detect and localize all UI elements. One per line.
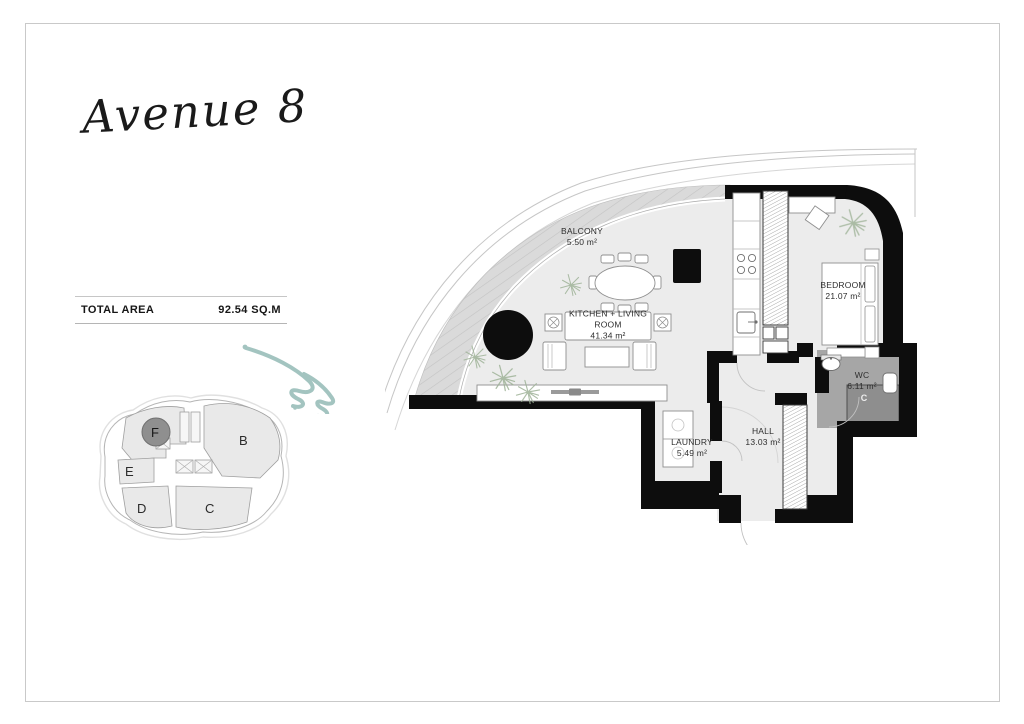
coffee-table-icon bbox=[585, 347, 629, 367]
armchair-left-icon bbox=[543, 342, 566, 370]
floor-plan-page: Avenue 8 TOTAL AREA 92.54 SQ.M bbox=[0, 0, 1024, 724]
nightstand-icon bbox=[865, 249, 879, 260]
unit-label-b: B bbox=[239, 433, 248, 448]
wc-sink-icon bbox=[821, 355, 841, 371]
toilet-icon bbox=[883, 373, 897, 393]
total-area-value: 92.54 SQ.M bbox=[218, 304, 281, 316]
room-label-bedroom: BEDROOM 21.07 m² bbox=[820, 280, 865, 302]
side-table-right-icon bbox=[654, 314, 671, 331]
tv-console-icon bbox=[477, 385, 667, 401]
unit-d-shape bbox=[122, 486, 172, 528]
side-table-left-icon bbox=[545, 314, 562, 331]
sink-icon bbox=[737, 312, 758, 333]
round-chair-icon bbox=[483, 310, 533, 360]
total-area-label: TOTAL AREA bbox=[81, 304, 154, 316]
room-label-laundry: LAUNDRY 5.49 m² bbox=[671, 437, 713, 459]
brand-logo: Avenue 8 bbox=[81, 77, 343, 144]
armchair-right-icon bbox=[633, 342, 656, 370]
unit-label-d: D bbox=[137, 501, 146, 516]
floor-plan-drawing bbox=[385, 145, 925, 545]
bed-icon bbox=[822, 249, 879, 358]
room-label-balcony: BALCONY 5.50 m² bbox=[561, 226, 603, 248]
key-plan-icon: B C D E F bbox=[92, 386, 297, 548]
floor-plan: BALCONY 5.50 m² KITCHEN + LIVING ROOM 41… bbox=[385, 145, 925, 545]
room-label-kitchen-living: KITCHEN + LIVING ROOM 41.34 m² bbox=[564, 308, 652, 341]
unit-label-e: E bbox=[125, 464, 134, 479]
nightstand-icon bbox=[865, 347, 879, 358]
unit-e-shape bbox=[118, 458, 154, 484]
wardrobe-hall-icon bbox=[783, 405, 807, 509]
shower-watermark: C bbox=[861, 393, 868, 403]
unit-label-f: F bbox=[151, 425, 159, 440]
room-label-hall: HALL 13.03 m² bbox=[745, 426, 780, 448]
media-cabinet-icon bbox=[673, 249, 701, 283]
total-area-block: TOTAL AREA 92.54 SQ.M bbox=[75, 296, 287, 324]
room-label-wc: WC 6.11 m² bbox=[847, 370, 877, 392]
kitchen-counter-icon bbox=[733, 193, 760, 355]
unit-label-c: C bbox=[205, 501, 214, 516]
wardrobe-kitchen-icon bbox=[763, 191, 788, 325]
